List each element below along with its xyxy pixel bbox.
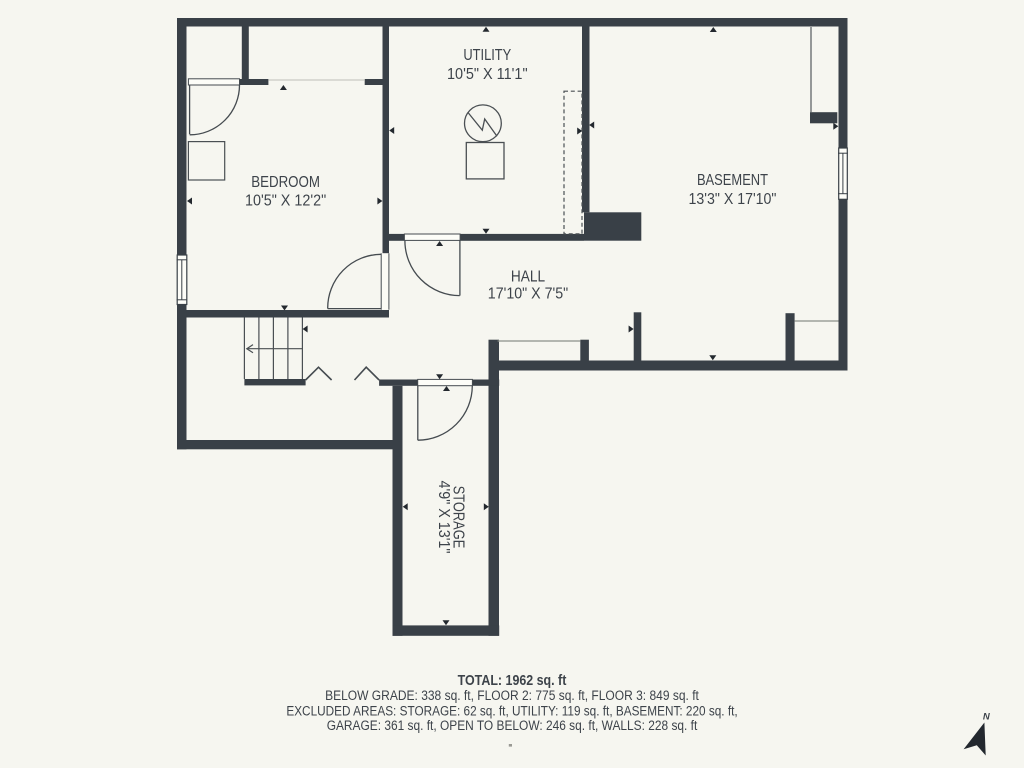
svg-text:N: N [983,711,991,722]
svg-text:HALL: HALL [511,268,546,285]
svg-text:UTILITY: UTILITY [463,47,511,64]
svg-text:10'5" X 12'2": 10'5" X 12'2" [245,192,326,209]
svg-text:4'9" X 13'1": 4'9" X 13'1" [435,481,452,554]
svg-text:BELOW GRADE: 338 sq. ft, FLOOR: BELOW GRADE: 338 sq. ft, FLOOR 2: 775 sq… [325,688,699,703]
svg-text:BASEMENT: BASEMENT [697,172,769,189]
svg-text:13'3" X 17'10": 13'3" X 17'10" [689,191,777,208]
svg-text:TOTAL: 1962 sq. ft: TOTAL: 1962 sq. ft [458,672,567,689]
svg-text:EXCLUDED AREAS: STORAGE: 62 sq: EXCLUDED AREAS: STORAGE: 62 sq. ft, UTIL… [286,703,737,718]
svg-text:BEDROOM: BEDROOM [251,174,320,191]
svg-text:17'10" X 7'5": 17'10" X 7'5" [488,286,568,303]
svg-text:GARAGE: 361 sq. ft, OPEN TO BE: GARAGE: 361 sq. ft, OPEN TO BELOW: 246 s… [327,718,698,733]
svg-text:10'5" X 11'1": 10'5" X 11'1" [447,66,528,83]
